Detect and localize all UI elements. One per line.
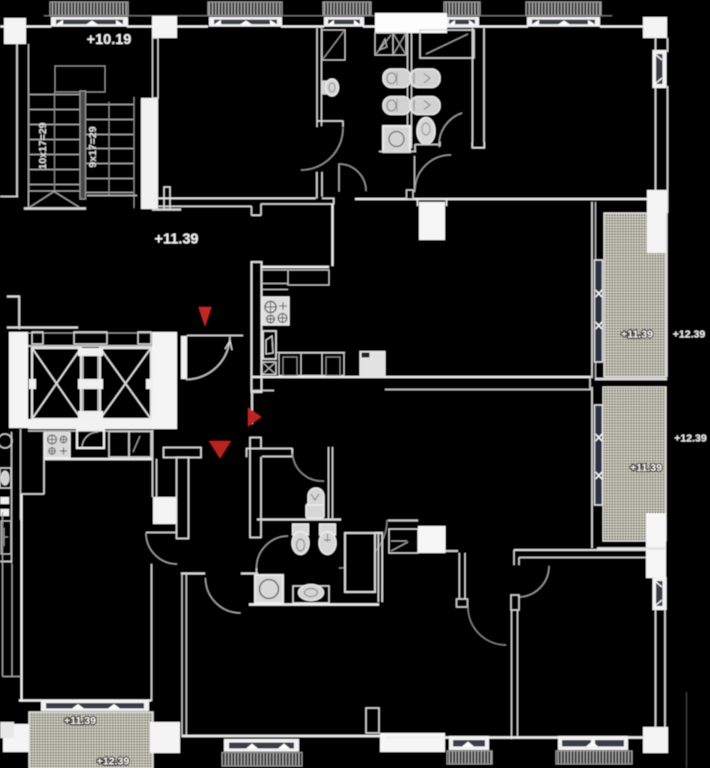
svg-text:+11.39: +11.39 — [630, 462, 662, 474]
svg-text:+12.39: +12.39 — [674, 433, 707, 445]
svg-text:+10.19: +10.19 — [87, 32, 132, 48]
svg-text:+12.39: +12.39 — [673, 329, 706, 341]
svg-text:10x17=29: 10x17=29 — [37, 122, 49, 169]
svg-text:+12.39: +12.39 — [97, 756, 130, 768]
svg-text:+11.39: +11.39 — [621, 329, 653, 341]
svg-text:9x17=29: 9x17=29 — [87, 126, 99, 167]
svg-text:+11.39: +11.39 — [155, 232, 199, 248]
svg-text:+11.39: +11.39 — [64, 715, 96, 727]
